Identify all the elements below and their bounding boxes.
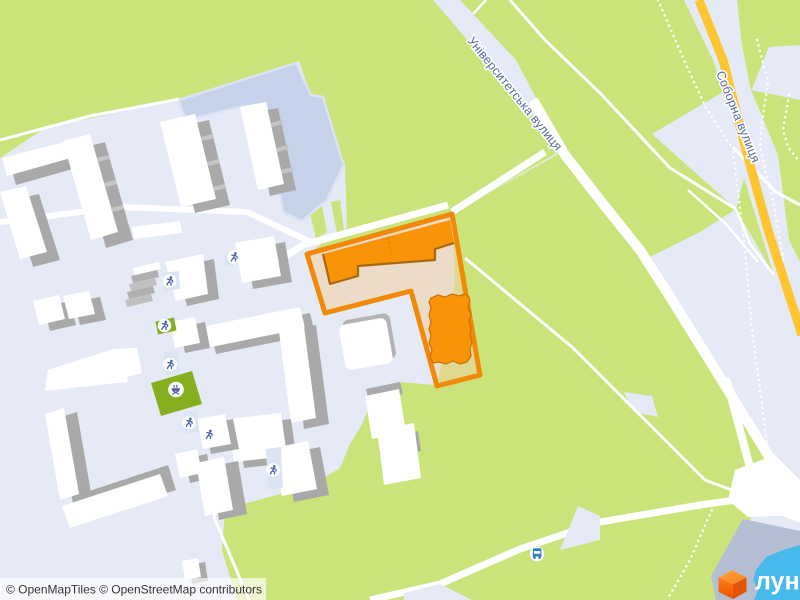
svg-text:© OpenMapTiles © OpenStreetMap: © OpenMapTiles © OpenStreetMap contribut… bbox=[6, 583, 262, 597]
svg-text:лун: лун bbox=[755, 568, 800, 596]
